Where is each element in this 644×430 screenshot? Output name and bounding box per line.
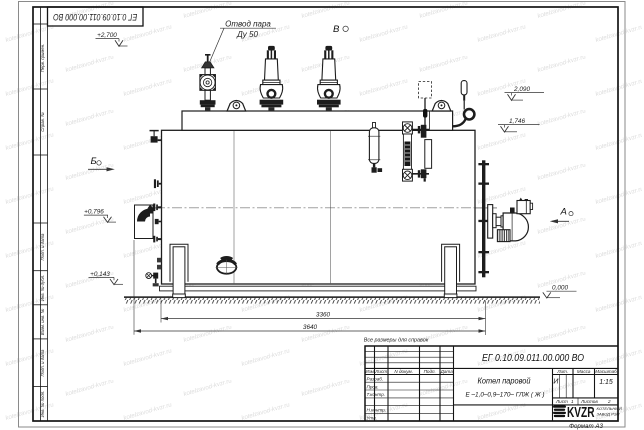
svg-text:0,000: 0,000 (552, 285, 568, 292)
svg-text:Лист: Лист (374, 369, 387, 374)
svg-text:Утв.: Утв. (367, 415, 377, 420)
svg-text:Т.контр.: Т.контр. (367, 392, 386, 397)
svg-text:KVZR: KVZR (567, 405, 595, 421)
svg-text:Б: Б (91, 156, 97, 167)
svg-text:Листов: Листов (580, 399, 598, 404)
svg-text:+2,700: +2,700 (97, 32, 117, 39)
svg-text:Лит.: Лит. (556, 369, 568, 374)
svg-text:3360: 3360 (316, 312, 331, 319)
svg-text:Масса: Масса (577, 369, 591, 374)
svg-text:+0,796: +0,796 (84, 209, 104, 216)
svg-text:1,746: 1,746 (509, 118, 525, 125)
svg-text:Инв. № дубл.: Инв. № дубл. (40, 275, 45, 301)
svg-text:Изм: Изм (365, 369, 374, 374)
svg-text:Пров.: Пров. (367, 384, 379, 389)
svg-text:2,090: 2,090 (513, 86, 530, 93)
svg-text:Взам. инв. №: Взам. инв. № (40, 308, 45, 335)
svg-text:Подп. и дата: Подп. и дата (40, 349, 45, 377)
svg-text:Инв. № подл.: Инв. № подл. (40, 391, 45, 418)
svg-text:Подп. и дата: Подп. и дата (40, 233, 45, 261)
svg-text:Формат А3: Формат А3 (569, 423, 603, 430)
svg-text:Лист: Лист (555, 399, 568, 404)
svg-text:А: А (560, 207, 567, 218)
svg-text:Н.контр.: Н.контр. (367, 408, 386, 413)
svg-text:ЗАВОД РЭП: ЗАВОД РЭП (597, 412, 620, 417)
svg-text:Ду 50: Ду 50 (236, 30, 258, 39)
svg-text:Все размеры для справок: Все размеры для справок (364, 337, 429, 343)
svg-text:Разраб.: Разраб. (367, 377, 384, 382)
svg-text:Котел паровой: Котел паровой (478, 377, 532, 386)
svg-text:N докум.: N докум. (394, 369, 413, 374)
svg-text:Отвод пара: Отвод пара (225, 20, 271, 29)
svg-text:Перв. примен.: Перв. примен. (40, 44, 45, 73)
svg-text:ЕГ 0.10.09.011.00.000 ВО: ЕГ 0.10.09.011.00.000 ВО (53, 12, 137, 22)
svg-text:Справ. №: Справ. № (40, 112, 45, 132)
svg-text:Е –1,0–0,9–170– ГЛЖ ( Ж ): Е –1,0–0,9–170– ГЛЖ ( Ж ) (466, 392, 545, 399)
svg-text:1:15: 1:15 (599, 379, 613, 386)
svg-text:ЕГ 0.10.09.011.00.000 ВО: ЕГ 0.10.09.011.00.000 ВО (482, 353, 584, 364)
svg-text:Масштаб: Масштаб (595, 369, 617, 374)
svg-text:+0,143: +0,143 (90, 271, 110, 278)
svg-text:КОТЕЛЬНЫЙ: КОТЕЛЬНЫЙ (597, 406, 622, 411)
svg-text:В: В (333, 24, 340, 35)
svg-text:Подп.: Подп. (424, 369, 436, 374)
svg-text:Дата: Дата (440, 369, 454, 374)
svg-text:3640: 3640 (303, 324, 318, 331)
svg-text:1: 1 (571, 399, 574, 404)
svg-text:2: 2 (607, 399, 611, 404)
